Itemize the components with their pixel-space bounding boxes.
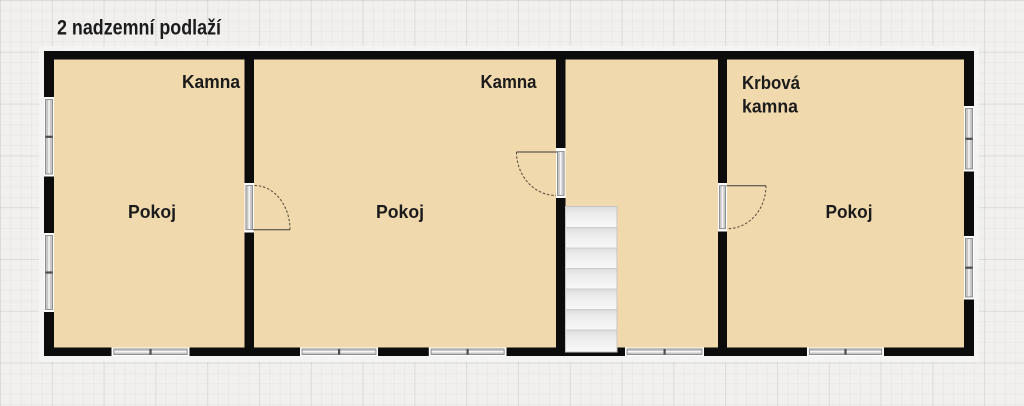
svg-text:Krbová: Krbová	[742, 73, 801, 93]
svg-text:Pokoj: Pokoj	[376, 202, 424, 222]
svg-text:Kamna: Kamna	[481, 72, 538, 92]
svg-text:Pokoj: Pokoj	[128, 202, 176, 222]
svg-text:2 nadzemní podlaží: 2 nadzemní podlaží	[57, 17, 222, 40]
svg-text:kamna: kamna	[742, 97, 799, 117]
svg-text:Pokoj: Pokoj	[826, 202, 873, 222]
svg-text:Kamna: Kamna	[182, 72, 241, 92]
